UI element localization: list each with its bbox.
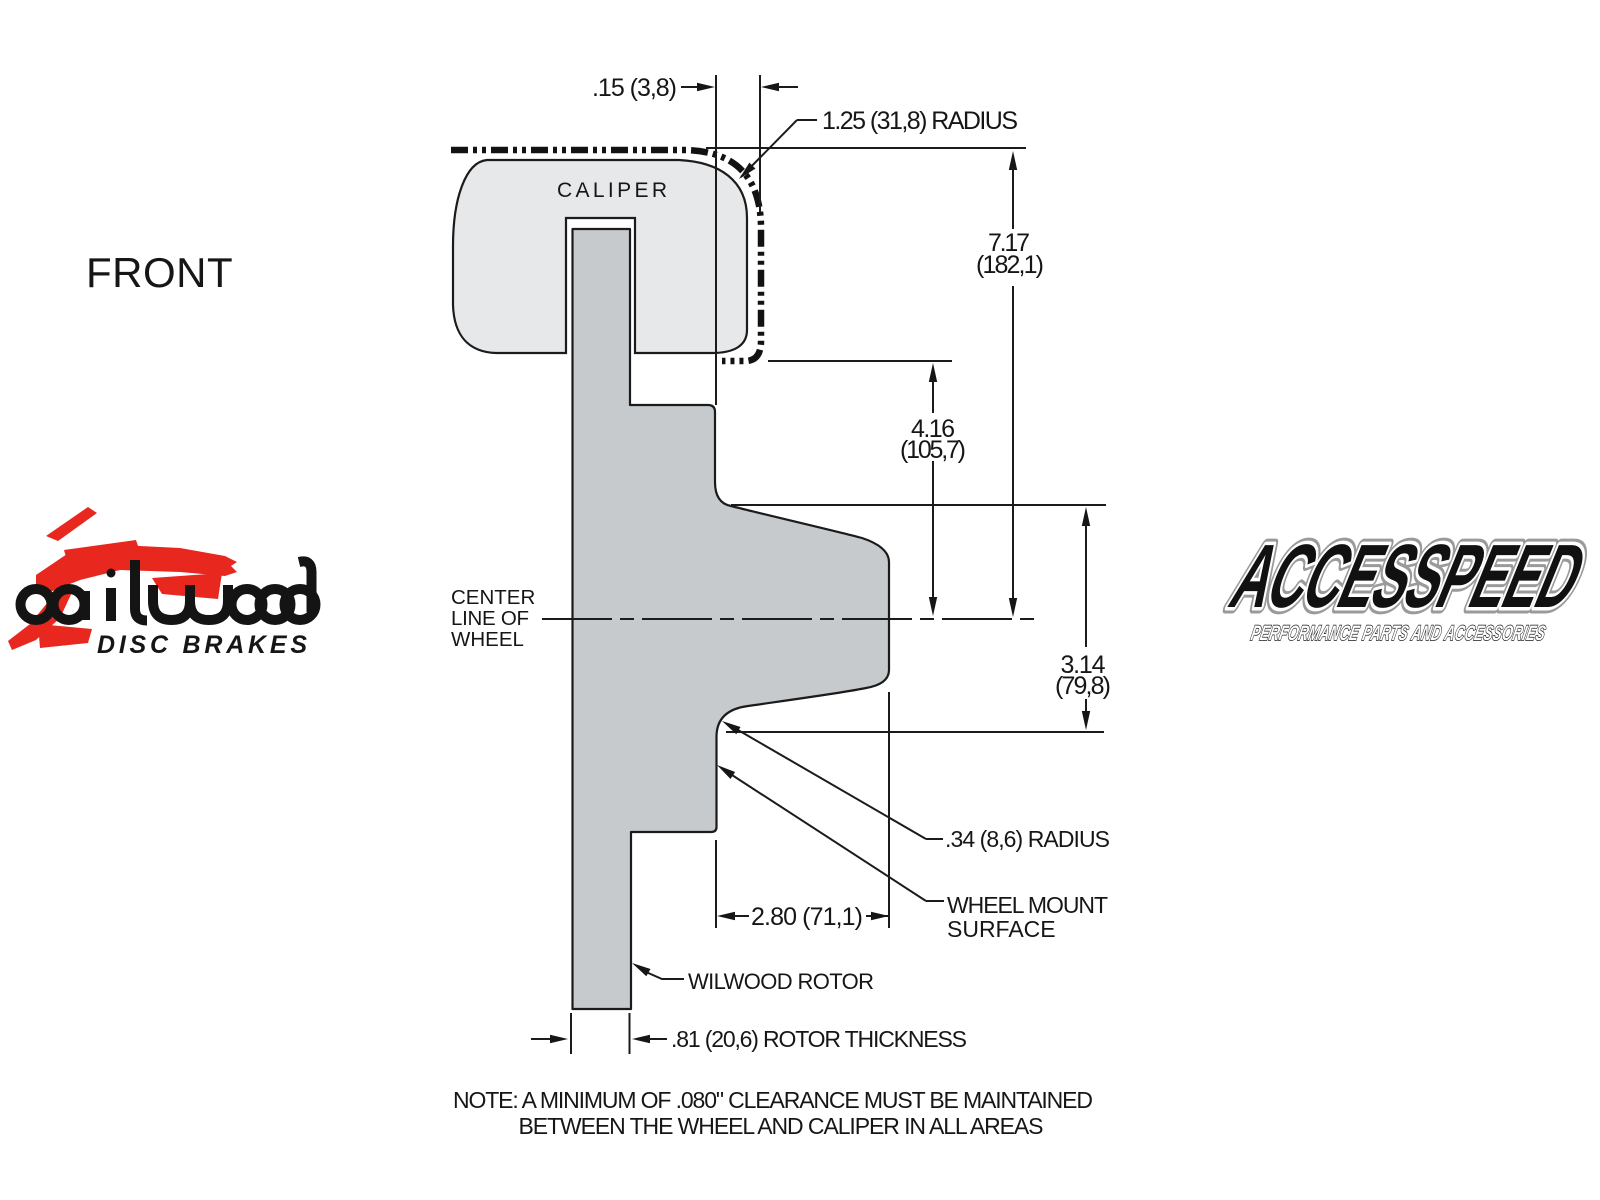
svg-text:1.25 (31,8) RADIUS: 1.25 (31,8) RADIUS [822,107,1018,135]
svg-text:LINE OF: LINE OF [451,607,529,630]
svg-text:2.80 (71,1): 2.80 (71,1) [751,903,863,931]
svg-text:WHEEL: WHEEL [451,628,524,651]
svg-text:NOTE: A MINIMUM OF .080" CLEAR: NOTE: A MINIMUM OF .080" CLEARANCE MUST … [453,1087,1093,1113]
svg-text:BETWEEN THE WHEEL AND CALIPER: BETWEEN THE WHEEL AND CALIPER IN ALL ARE… [519,1113,1044,1139]
svg-text:ACCESSPEED: ACCESSPEED [1218,527,1599,627]
svg-text:WHEEL MOUNT: WHEEL MOUNT [947,892,1108,918]
svg-text:FRONT: FRONT [86,249,233,296]
svg-text:(182,1): (182,1) [976,251,1044,279]
svg-text:WILWOOD ROTOR: WILWOOD ROTOR [688,969,874,994]
svg-text:.34 (8,6) RADIUS: .34 (8,6) RADIUS [945,826,1110,852]
svg-text:(105,7): (105,7) [900,436,966,464]
svg-text:CENTER: CENTER [451,586,535,609]
svg-text:.81 (20,6) ROTOR THICKNESS: .81 (20,6) ROTOR THICKNESS [671,1026,967,1052]
svg-text:.15 (3,8): .15 (3,8) [592,74,677,102]
svg-text:SURFACE: SURFACE [947,916,1056,942]
svg-text:(79,8): (79,8) [1055,672,1111,700]
svg-text:PERFORMANCE PARTS AND ACCESSOR: PERFORMANCE PARTS AND ACCESSORIES [1249,621,1548,645]
